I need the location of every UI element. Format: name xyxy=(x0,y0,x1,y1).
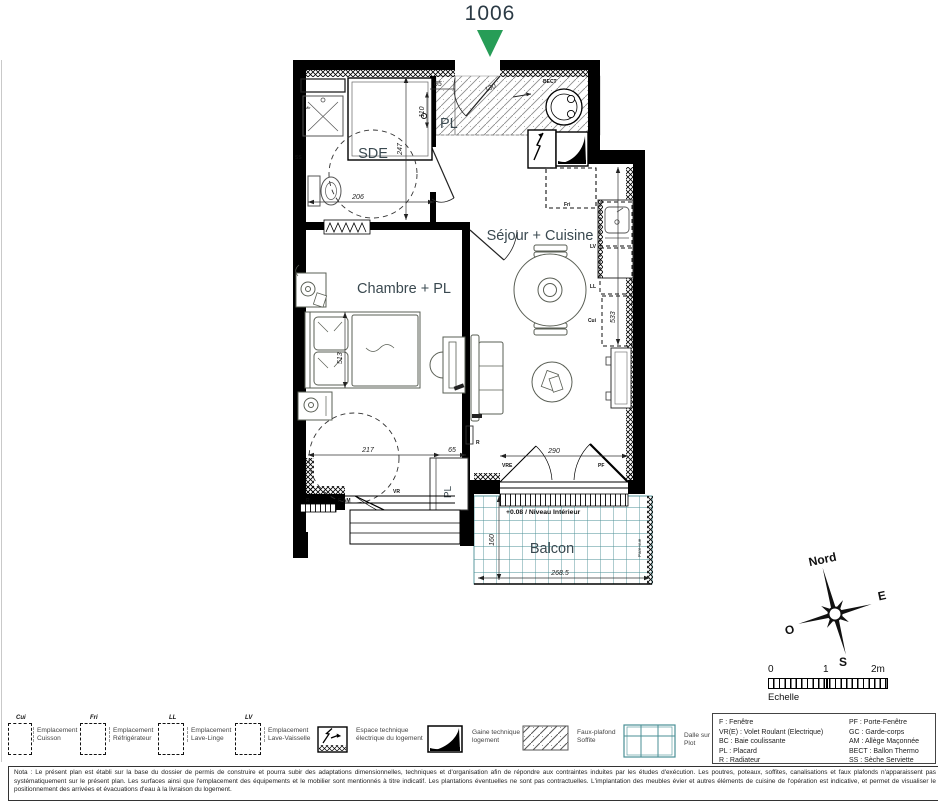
porte-fenetre xyxy=(500,444,628,506)
abbrev-am: AM : Allège Maçonnée xyxy=(849,737,919,747)
nota-text: Nota : Le présent plan est établi sur la… xyxy=(8,766,938,801)
room-sejour: Séjour + Cuisine xyxy=(487,228,594,244)
room-pl-top: PL xyxy=(440,116,458,132)
pare-vue-label: Pare-vue xyxy=(637,538,642,557)
threshold xyxy=(500,494,628,506)
fridge-zone xyxy=(546,168,596,208)
dim-lit-h: 513 xyxy=(337,352,344,364)
page-edge-line xyxy=(1,60,2,762)
scale-2m: 2m xyxy=(871,664,885,675)
abbrev-ss: SS : Sèche Serviette xyxy=(849,756,919,766)
radiator-right xyxy=(611,348,631,408)
scale-label: Echelle xyxy=(768,692,799,703)
abbrev-vre: VR(E) : Volet Roulant (Electrique) xyxy=(719,728,823,738)
closet-pl xyxy=(430,458,468,510)
legend-cuisson-label: Emplacement Cuisson xyxy=(33,727,83,742)
sofa xyxy=(471,335,503,421)
vre-label: VRE xyxy=(502,463,513,469)
dining-table xyxy=(514,245,586,335)
dim-pl2-w: 65 xyxy=(448,447,456,454)
dim-pf-w: 290 xyxy=(547,448,560,455)
towel-radiator xyxy=(324,220,370,234)
scale-mid-divider xyxy=(826,679,828,688)
room-chambre: Chambre + PL xyxy=(357,281,451,297)
dim-sde-h: 247 xyxy=(397,142,404,156)
legend-lave-vaisselle-label: Emplacement Lave-Vaisselle xyxy=(264,727,324,742)
abbrev-bect: BECT : Ballon Thermo xyxy=(849,747,919,757)
compass-star xyxy=(786,558,883,665)
bed xyxy=(305,312,420,388)
radiator-chambre-label: R xyxy=(306,498,310,504)
fridge-label: Fri xyxy=(564,202,571,208)
scale-0: 0 xyxy=(768,664,774,675)
electrical-panel xyxy=(528,130,556,168)
legend-lave-linge-box xyxy=(158,723,184,755)
balcony-railing-hatch xyxy=(647,496,653,584)
dim-sde-w: 206 xyxy=(351,194,364,201)
legend-lave-vaisselle-box xyxy=(235,723,261,755)
dim-balcon-w: 268.5 xyxy=(550,570,569,577)
legend-lave-vaisselle-tag: LV xyxy=(244,715,253,721)
unit-number: 1006 xyxy=(440,2,540,26)
pf-label: PF xyxy=(598,463,604,469)
side-table xyxy=(532,362,572,402)
scale-bar: 0 1 2m Echelle xyxy=(768,664,893,706)
abbrev-pl: PL : Placard xyxy=(719,747,823,757)
legend-refrigerateur-box xyxy=(80,723,106,755)
legend-dalle-icon xyxy=(623,724,676,758)
ss-label: SS xyxy=(295,155,302,161)
dim-pl-h: 110 xyxy=(419,106,426,117)
compass-west: O xyxy=(784,622,796,638)
scale-1: 1 xyxy=(823,664,829,675)
abbreviations-col2: PF : Porte-Fenêtre GC : Garde-corps AM :… xyxy=(849,718,919,766)
f-am-label: F-AM xyxy=(338,498,351,504)
ll-label: LL xyxy=(590,284,596,290)
legend-faux-plafond-icon xyxy=(522,725,569,751)
legend-gaine-label: Gaine technique logement xyxy=(469,729,532,744)
room-sde: SDE xyxy=(358,146,388,162)
bect-tank xyxy=(546,89,582,125)
legend-espace-technique-label: Espace technique électrique du logement xyxy=(353,727,426,742)
abbrev-r: R : Radiateur xyxy=(719,756,823,766)
floor-plan: SS Mir SDE PL BECT Fri LV LL Cui xyxy=(288,52,668,597)
legend-refrigerateur-tag: Fri xyxy=(89,715,99,721)
legend-lave-linge-tag: LL xyxy=(168,715,177,721)
dim-pl-w: 65 xyxy=(434,81,442,88)
dim-cuisine-h: 533 xyxy=(610,311,617,323)
room-balcon: Balcon xyxy=(530,541,574,557)
radiator-chambre xyxy=(300,504,336,512)
radiator-sejour-label: R xyxy=(476,440,480,446)
niveau-label: +0.08 / Niveau Intérieur xyxy=(506,509,581,516)
cui-label: Cui xyxy=(588,318,597,324)
desk xyxy=(430,337,465,393)
vr-label: VR xyxy=(393,489,400,495)
compass-north: Nord xyxy=(807,550,837,569)
legend-faux-plafond-label: Faux-plafond Soffite xyxy=(574,729,632,744)
lv-label: LV xyxy=(590,244,597,250)
abbrev-pf: PF : Porte-Fenêtre xyxy=(849,718,919,728)
legend-dalle-label: Dalle sur Plot xyxy=(681,732,718,747)
abbreviations-box: F : Fenêtre VR(E) : Volet Roulant (Elect… xyxy=(712,713,936,764)
compass-east: E xyxy=(877,588,888,603)
scale-ticks xyxy=(768,678,888,689)
legend-refrigerateur-label: Emplacement Réfrigérateur xyxy=(109,727,163,742)
legend-cuisson-tag: Cui xyxy=(15,715,27,721)
compass-rose: Nord E O S xyxy=(765,550,910,672)
bect-label: BECT xyxy=(543,79,557,85)
abbrev-gc: GC : Garde-corps xyxy=(849,728,919,738)
legend-cuisson-box xyxy=(8,723,32,755)
abbreviations-col1: F : Fenêtre VR(E) : Volet Roulant (Elect… xyxy=(719,718,823,766)
abbrev-f: F : Fenêtre xyxy=(719,718,823,728)
mirror-label: Mir xyxy=(305,105,311,110)
legend-lave-linge-label: Emplacement Lave-Linge xyxy=(187,727,243,742)
abbrev-bc: BC : Baie coulissante xyxy=(719,737,823,747)
gaine-technique xyxy=(556,132,588,166)
legend-gaine-icon xyxy=(427,725,463,753)
dim-chambre-w: 217 xyxy=(361,447,375,454)
nightstand-bottom xyxy=(298,392,332,420)
dim-balcon-h: 160 xyxy=(489,534,496,546)
legend-espace-technique-icon xyxy=(317,726,348,753)
